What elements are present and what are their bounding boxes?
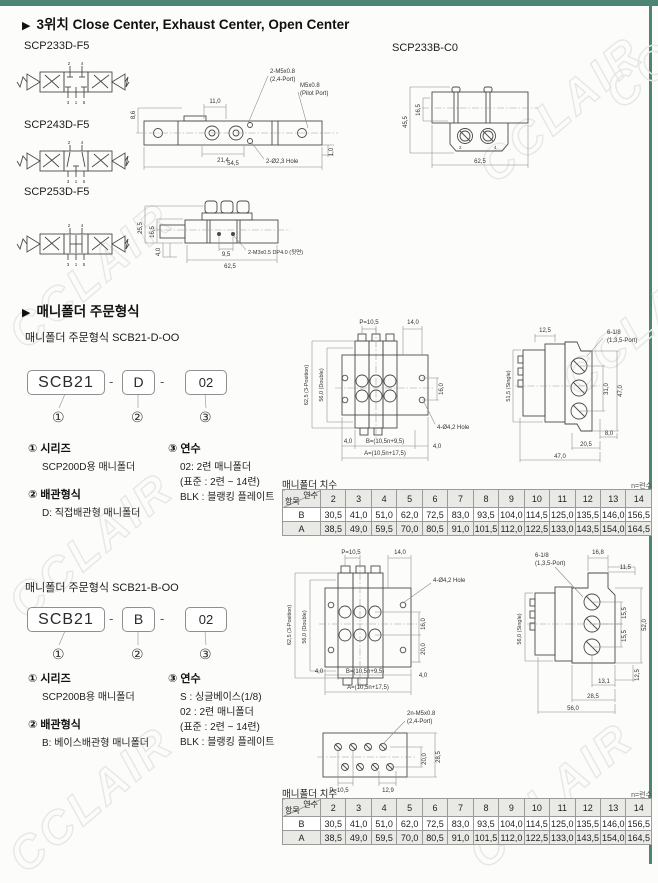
dim-16-8: 16,8 (592, 550, 604, 556)
legend-line: BLK : 블랭킹 플레이트 (180, 733, 274, 748)
table-col-header: 5 (397, 799, 422, 817)
callout-port-16: 6-1/8 (607, 330, 621, 336)
port-label-4: 4 (81, 140, 84, 145)
table-cell: 114,5 (524, 817, 549, 831)
manifold-top-view (325, 566, 411, 685)
table-cell: 83,0 (448, 817, 473, 831)
valve-symbol-body (17, 228, 129, 260)
dim-31-0: 31,0 (604, 383, 610, 395)
order-code-leader-lines (20, 631, 240, 646)
model-label-scp233b: SCP233B-C0 (392, 42, 458, 54)
callout-port-thread-2: (2,4-Port) (407, 719, 432, 725)
dim-20-0: 20,0 (422, 753, 428, 765)
dim-4-0-left: 4,0 (315, 669, 324, 675)
table-col-header: 12 (575, 490, 600, 508)
table-col-header: 12 (575, 799, 600, 817)
dim-51-5-single: 51,5 (Single) (506, 370, 512, 401)
table-col-header: 9 (499, 490, 524, 508)
table-cell: 122,5 (524, 522, 549, 536)
table-cell: 156,5 (626, 508, 652, 522)
table-cell: 135,5 (575, 508, 600, 522)
callout-pilot-thread: M5x0.8 (300, 83, 320, 89)
order-form-b-subtitle: 매니폴더 주문형식 SCB21-B-OO (25, 579, 179, 595)
order-code-leader-lines (20, 394, 240, 409)
legend-units-lines: S : 싱글베이스(1/8)02 : 2련 매니폴더(표준 : 2련 ~ 14련… (180, 688, 274, 748)
manifold-side-view (530, 573, 615, 663)
table-row: A38,549,059,570,080,591,0101,5112,0122,5… (283, 522, 652, 536)
dim-pitch: P=10,5 (359, 320, 379, 326)
section-title-manifold: ▶매니폴더 주문형식 (22, 300, 140, 320)
table-cell: 30,5 (321, 817, 346, 831)
legend-piping-title: ② 배관형식 (28, 716, 81, 732)
table-cell: 80,5 (422, 831, 447, 845)
model-label-scp233d: SCP233D-F5 (24, 40, 89, 52)
order-code-mark-2: ② (131, 646, 144, 663)
dim-11-5: 11,5 (620, 565, 632, 571)
corner-label-units: 연수 (303, 799, 318, 810)
port-label-5: 5 (83, 179, 86, 184)
table-row-label: A (283, 831, 321, 845)
table-cell: 70,0 (397, 522, 422, 536)
table-col-header: 5 (397, 490, 422, 508)
order-code-separator: - (160, 611, 164, 626)
table-col-header: 8 (473, 799, 498, 817)
dim-47-0-right: 47,0 (618, 385, 624, 397)
table-cell: 51,0 (371, 817, 396, 831)
dimension-drawing-scp233d: 11,0 8,6 21,4 54,5 1,0 2-M5x0.8 (2,4-Por… (132, 58, 342, 173)
table-row: B30,541,051,062,072,583,093,5104,0114,51… (283, 817, 652, 831)
order-code-mark-3: ③ (199, 409, 212, 426)
dim-16-5: 16,5 (150, 226, 156, 238)
order-code-mark-3: ③ (199, 646, 212, 663)
port-label-4: 4 (81, 223, 84, 228)
port-label-1: 1 (75, 100, 78, 105)
table-cell: 164,5 (626, 831, 652, 845)
dim-11-0: 11,0 (209, 99, 221, 105)
dim-9-5: 9,5 (222, 252, 231, 258)
dim-4-0-right: 4,0 (433, 444, 442, 450)
table-cell: 62,0 (397, 817, 422, 831)
table-row-label: A (283, 522, 321, 536)
table-col-header: 6 (422, 490, 447, 508)
table-col-header: 2 (321, 490, 346, 508)
table-col-header: 3 (346, 799, 371, 817)
table-col-header: 14 (626, 799, 652, 817)
section-title-text: 3위치 Close Center, Exhaust Center, Open C… (36, 17, 349, 32)
drawing-body (432, 87, 528, 151)
table-cell: 49,0 (346, 522, 371, 536)
callout-port-135: (1,3,5-Port) (607, 338, 637, 344)
dim-47-0-bottom: 47,0 (554, 454, 566, 460)
order-code-series-box: SCB21 (27, 370, 105, 395)
order-code-units-box: 02 (185, 607, 227, 632)
table-row: B30,541,051,062,072,583,093,5104,0114,51… (283, 508, 652, 522)
table-col-header: 14 (626, 490, 652, 508)
table-col-header: 7 (448, 799, 473, 817)
dim-4-0: 4,0 (156, 247, 162, 256)
table-cell: 112,0 (499, 831, 524, 845)
port-label-2: 2 (68, 61, 71, 66)
table-row-label: B (283, 508, 321, 522)
dim-16-5: 16,5 (416, 104, 422, 116)
callout-back-thread: 2-M3x0.5 DP4.0 (뒷면) (248, 248, 303, 256)
corner-label-item: 항목 (285, 496, 300, 507)
port-label-2: 2 (459, 145, 462, 150)
dim-20-5: 20,5 (580, 442, 592, 448)
legend-piping-desc: D: 직접배관형 매니폴더 (42, 504, 140, 519)
valve-symbol-scp253d: 2 4 3 1 5 (14, 222, 132, 268)
section-bullet-icon: ▶ (22, 20, 30, 32)
order-code-piping-box: D (122, 370, 155, 395)
dimension-drawing-scp233b: 45,5 16,5 62,5 2 4 (398, 56, 650, 184)
dim-a-formula: A=(10,5n+17,5) (364, 451, 406, 457)
table-col-header: 10 (524, 799, 549, 817)
dim-28-5: 28,5 (436, 751, 442, 763)
dim-45-5: 45,5 (403, 116, 409, 128)
table-header-row: 연수항목234567891011121314 (283, 490, 652, 508)
dim-54-5: 54,5 (227, 161, 239, 167)
table-cell: 143,5 (575, 522, 600, 536)
table-header-row: 연수항목234567891011121314 (283, 799, 652, 817)
table-cell: 41,0 (346, 508, 371, 522)
port-label-2: 2 (68, 223, 71, 228)
order-code-separator: - (160, 374, 164, 389)
table-cell: 62,0 (397, 508, 422, 522)
dim-15-5-upper: 15,5 (622, 607, 628, 619)
dim-1-0: 1,0 (329, 147, 335, 156)
table-cell: 125,0 (550, 508, 575, 522)
legend-piping-title: ② 배관형식 (28, 486, 81, 502)
table-cell: 133,0 (550, 522, 575, 536)
dim-56-0-double: 56,0 (Double) (319, 368, 325, 401)
table-col-header: 4 (371, 490, 396, 508)
order-code-series-box: SCB21 (27, 607, 105, 632)
table-col-header: 11 (550, 799, 575, 817)
table-cell: 38,5 (321, 522, 346, 536)
table-cell: 146,0 (600, 817, 625, 831)
manifold-dimension-table-2: 연수항목234567891011121314B30,541,051,062,07… (282, 798, 652, 845)
table-col-header: 13 (600, 490, 625, 508)
legend-line: S : 싱글베이스(1/8) (180, 688, 274, 703)
table-cell: 93,5 (473, 508, 498, 522)
table-cell: 164,5 (626, 522, 652, 536)
table-cell: 101,5 (473, 831, 498, 845)
table-cell: 133,0 (550, 831, 575, 845)
table-cell: 114,5 (524, 508, 549, 522)
model-label-scp253d: SCP253D-F5 (24, 186, 89, 198)
dim-4-0-left: 4,0 (344, 439, 353, 445)
table-col-header: 9 (499, 799, 524, 817)
dim-52-0: 52,0 (642, 619, 648, 631)
port-label-3: 3 (67, 100, 70, 105)
table-cell: 38,5 (321, 831, 346, 845)
table-cell: 156,5 (626, 817, 652, 831)
dim-62-5-3position: 62,5 (3-Position) (287, 605, 293, 646)
dim-12-5: 12,5 (539, 328, 551, 334)
callout-pilot-thread-2: (Pilot Port) (300, 91, 328, 97)
callout-port-16: 6-1/8 (535, 553, 549, 559)
table-cell: 83,0 (448, 508, 473, 522)
manifold-b-drawing: P=10,5 14,0 4-Ø4,2 Hole 62,5 (3-Position… (283, 545, 658, 800)
section-title-text: 매니폴더 주문형식 (36, 304, 139, 319)
table-col-header: 7 (448, 490, 473, 508)
valve-symbol-scp243d: 2 4 3 1 5 (14, 139, 132, 185)
dim-b-formula: B=(10,5n+9,5) (366, 439, 404, 445)
legend-line: 02: 2련 매니폴더 (180, 458, 274, 473)
table-cell: 122,5 (524, 831, 549, 845)
dimension-lines (410, 87, 528, 168)
table-cell: 49,0 (346, 831, 371, 845)
order-code-mark-1: ① (52, 409, 65, 426)
dim-62-5: 62,5 (224, 264, 236, 270)
order-code-mark-1: ① (52, 646, 65, 663)
corner-label-units: 연수 (303, 490, 318, 501)
legend-line: (표준 : 2련 ~ 14련) (180, 473, 274, 488)
callout-port-thread-2: (2,4-Port) (270, 77, 295, 83)
dim-8-0: 8,0 (605, 431, 614, 437)
port-label-1: 1 (75, 262, 78, 267)
dim-pitch: P=10,5 (341, 550, 361, 556)
dim-16-0: 16,0 (439, 383, 445, 395)
dim-14-0: 14,0 (407, 320, 419, 326)
table-col-header: 13 (600, 799, 625, 817)
order-code-separator: - (109, 374, 113, 389)
table-cell: 154,0 (600, 522, 625, 536)
dimension-drawing-scp253d: 25,5 16,5 4,0 9,5 62,5 2-M3x0.5 DP4.0 (뒷… (130, 192, 345, 288)
table-cell: 80,5 (422, 522, 447, 536)
legend-series-desc: SCP200B용 매니폴더 (42, 688, 135, 703)
order-code-mark-2: ② (131, 409, 144, 426)
table-col-header: 2 (321, 799, 346, 817)
dim-8-6: 8,6 (131, 110, 137, 119)
table-corner-cell: 연수항목 (283, 490, 321, 508)
legend-units-title: ③ 연수 (168, 670, 201, 686)
callout-port-thread: 2n-M5x0.8 (407, 711, 436, 717)
table-cell: 91,0 (448, 831, 473, 845)
manifold-side-view (518, 342, 592, 431)
order-code-separator: - (109, 611, 113, 626)
legend-line: BLK : 블랭킹 플레이트 (180, 488, 274, 503)
legend-units-title: ③ 연수 (168, 440, 201, 456)
table-cell: 154,0 (600, 831, 625, 845)
table-cell: 41,0 (346, 817, 371, 831)
table-row-label: B (283, 817, 321, 831)
order-form-d-subtitle: 매니폴더 주문형식 SCB21-D-OO (25, 329, 179, 345)
legend-units-lines: 02: 2련 매니폴더(표준 : 2련 ~ 14련)BLK : 블랭킹 플레이트 (180, 458, 274, 503)
dim-b-formula: B=(10,5n+9,5) (346, 669, 384, 675)
table-cell: 59,5 (371, 522, 396, 536)
table-cell: 135,5 (575, 817, 600, 831)
table-cell: 146,0 (600, 508, 625, 522)
table-cell: 70,0 (397, 831, 422, 845)
table-cell: 30,5 (321, 508, 346, 522)
callout-mounting-hole: 4-Ø4,2 Hole (433, 578, 466, 584)
table-col-header: 6 (422, 799, 447, 817)
port-label-5: 5 (83, 100, 86, 105)
legend-piping-desc: B: 베이스배관형 매니폴더 (42, 734, 149, 749)
table-col-header: 3 (346, 490, 371, 508)
callout-port-thread: 2-M5x0.8 (270, 69, 296, 75)
table-cell: 72,5 (422, 508, 447, 522)
port-label-3: 3 (67, 262, 70, 267)
dim-62-5-3position: 62,5 (3-Position) (304, 365, 310, 406)
port-label-4: 4 (494, 145, 497, 150)
table-cell: 93,5 (473, 817, 498, 831)
table-cell: 143,5 (575, 831, 600, 845)
callout-mounting-hole: 2-Ø2,3 Hole (266, 159, 299, 165)
valve-symbol-body (17, 66, 129, 98)
dim-a-formula: A=(10,5n+17,5) (347, 685, 389, 691)
dim-56-0: 56,0 (567, 706, 579, 712)
table-cell: 91,0 (448, 522, 473, 536)
legend-series-title: ① 시리즈 (28, 440, 71, 456)
table-col-header: 11 (550, 490, 575, 508)
section-bullet-icon: ▶ (22, 307, 30, 319)
callout-mounting-hole: 4-Ø4,2 Hole (437, 425, 470, 431)
dim-62-5: 62,5 (474, 159, 486, 165)
valve-symbol-scp233d: 2 4 3 1 5 (14, 60, 132, 106)
dim-4-0-right: 4,0 (419, 673, 428, 679)
legend-series-desc: SCP200D용 매니폴더 (42, 458, 135, 473)
port-label-5: 5 (83, 262, 86, 267)
dim-56-0-double: 56,0 (Double) (302, 610, 308, 643)
table-cell: 59,5 (371, 831, 396, 845)
manifold-bottom-view (323, 733, 407, 777)
corner-label-item: 항목 (285, 805, 300, 816)
section-title-valves: ▶3위치 Close Center, Exhaust Center, Open … (22, 13, 349, 33)
port-label-1: 1 (75, 179, 78, 184)
dim-13-1: 13,1 (598, 679, 610, 685)
table-col-header: 8 (473, 490, 498, 508)
dim-16-0: 16,0 (421, 618, 427, 630)
dim-12-9: 12,9 (382, 788, 394, 794)
table-cell: 51,0 (371, 508, 396, 522)
table-cell: 104,0 (499, 817, 524, 831)
table-row: A38,549,059,570,080,591,0101,5112,0122,5… (283, 831, 652, 845)
table-corner-cell: 연수항목 (283, 799, 321, 817)
dim-12-5: 12,5 (635, 669, 641, 681)
port-label-2: 2 (68, 140, 71, 145)
legend-series-title: ① 시리즈 (28, 670, 71, 686)
dim-14-0: 14,0 (394, 550, 406, 556)
drawing-body (144, 116, 322, 145)
table-col-header: 4 (371, 799, 396, 817)
manifold-side-dims (513, 334, 619, 462)
legend-line: 02 : 2련 매니폴더 (180, 703, 274, 718)
table-col-header: 10 (524, 490, 549, 508)
dim-25-5: 25,5 (138, 222, 144, 234)
callout-port-135: (1,3,5-Port) (535, 561, 565, 567)
manifold-d-drawing: P=10,5 14,0 62,5 (3-Position) 56,0 (Doub… (285, 298, 655, 480)
model-label-scp243d: SCP243D-F5 (24, 119, 89, 131)
valve-symbol-body (17, 145, 129, 177)
port-label-4: 4 (81, 61, 84, 66)
table-cell: 112,0 (499, 522, 524, 536)
port-label-3: 3 (67, 179, 70, 184)
dim-15-5-lower: 15,5 (622, 630, 628, 642)
table-cell: 101,5 (473, 522, 498, 536)
table-cell: 72,5 (422, 817, 447, 831)
table-cell: 125,0 (550, 817, 575, 831)
order-code-units-box: 02 (185, 370, 227, 395)
dim-20-0: 20,0 (421, 643, 427, 655)
dim-56-0-single: 56,0 (Single) (517, 613, 523, 644)
table-cell: 104,0 (499, 508, 524, 522)
manifold-top-view (342, 334, 428, 435)
dim-28-5: 28,5 (587, 694, 599, 700)
manifold-dimension-table-1: 연수항목234567891011121314B30,541,051,062,07… (282, 489, 652, 536)
legend-line: (표준 : 2련 ~ 14련) (180, 718, 274, 733)
order-code-piping-box: B (122, 607, 155, 632)
